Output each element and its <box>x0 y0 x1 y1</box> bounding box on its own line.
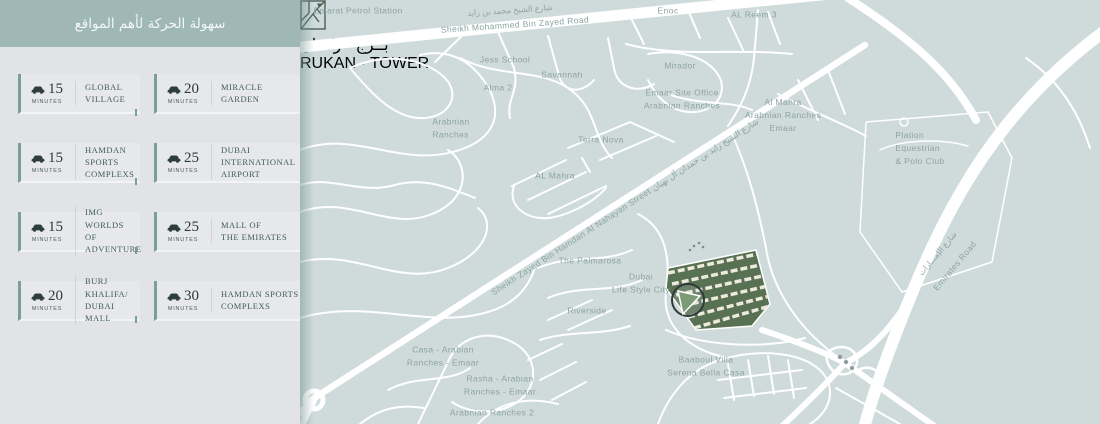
map-label-savannah: Savannah <box>541 69 582 82</box>
minutes-unit: MINUTES <box>32 99 62 105</box>
travel-card-burj-khalifa: 20 MINUTES BURJ KHALIFA/ DUBAI MALL <box>18 281 140 321</box>
sidebar-title-arabic: سهولة الحركة لأهم المواقع <box>75 16 226 32</box>
car-icon <box>31 223 45 233</box>
destination-label: MALL OF THE EMIRATES <box>211 219 287 244</box>
map-label-emarat-petrol-station: Emarat Petrol Station <box>313 5 402 18</box>
map-label-jess-school: Jess School <box>480 54 530 67</box>
minutes-value: 15 <box>48 219 63 236</box>
minutes-value: 25 <box>184 150 199 167</box>
travel-card-miracle-garden: 20 MINUTES MIRACLE GARDEN <box>154 74 306 114</box>
map-label-arabnian-ranches: Arabnian Ranches <box>432 115 469 141</box>
minutes-value: 15 <box>48 150 63 167</box>
minutes-value: 20 <box>48 288 63 305</box>
car-icon <box>167 85 181 95</box>
road-sheikh-mohammed-bin-zayed <box>300 0 1100 48</box>
car-icon <box>167 223 181 233</box>
tower-circle-marker <box>672 284 704 316</box>
minutes-unit: MINUTES <box>168 237 198 243</box>
minutes-unit: MINUTES <box>32 168 62 174</box>
map-label-terra-nova: Terra Nova <box>578 134 624 147</box>
map-label-al-mahra: AL Mahra <box>535 170 575 183</box>
destination-label: IMG WORLDS OF ADVENTURE <box>75 206 141 255</box>
destination-label: GLOBAL VILLAGE <box>75 81 125 106</box>
travel-card-dubai-airport: 25 MINUTES DUBAI INTERNATIONAL AIRPORT <box>154 143 306 183</box>
map-label-casa-ranches: Casa - Arabian Ranches - Emaar <box>407 343 479 369</box>
map-left-shadow <box>300 0 314 424</box>
map-label-al-reem-3: AL Reem 3 <box>731 9 777 22</box>
card-tick <box>135 178 138 185</box>
map-label-dubai-lifestyle-city: Dubai Life Style City <box>612 270 670 296</box>
minutes-value: 15 <box>48 81 63 98</box>
travel-card-mall-emirates: 25 MINUTES MALL OF THE EMIRATES <box>154 212 306 252</box>
map-label-mirador: Mirador <box>664 60 696 73</box>
destination-label: DUBAI INTERNATIONAL AIRPORT <box>211 144 306 181</box>
map-label-arabnian-ranches-2: Arabnian Ranches 2 <box>450 407 534 420</box>
car-icon <box>31 292 45 302</box>
minutes-unit: MINUTES <box>168 99 198 105</box>
map-label-the-palmarosa: The Palmarosa <box>559 255 622 268</box>
page: سهولة الحركة لأهم المواقع 15 MINUTES GLO… <box>0 0 1100 424</box>
card-tick <box>135 247 138 254</box>
minutes-value: 20 <box>184 81 199 98</box>
car-icon <box>167 292 181 302</box>
car-icon <box>31 85 45 95</box>
map-label-enoc: Enoc <box>658 5 679 18</box>
travel-times-sidebar: سهولة الحركة لأهم المواقع 15 MINUTES GLO… <box>0 0 300 424</box>
travel-time-cards: 15 MINUTES GLOBAL VILLAGE 20 MINUTES MIR… <box>0 74 300 321</box>
car-icon <box>167 154 181 164</box>
location-map: Emarat Petrol Station شارع الشيخ محمد بن… <box>300 0 1100 424</box>
map-label-alma-2: Alma 2 <box>484 82 513 95</box>
travel-card-hamdan-sports-1: 15 MINUTES HAMDAN SPORTS COMPLEXS <box>18 143 140 183</box>
car-icon <box>31 154 45 164</box>
card-tick <box>135 109 138 116</box>
card-tick <box>135 316 138 323</box>
travel-card-global-village: 15 MINUTES GLOBAL VILLAGE <box>18 74 140 114</box>
travel-card-img-worlds: 15 MINUTES IMG WORLDS OF ADVENTURE <box>18 212 140 252</box>
road-emirates <box>864 30 1100 424</box>
destination-label: MIRACLE GARDEN <box>211 81 263 106</box>
sidebar-header: سهولة الحركة لأهم المواقع <box>0 0 300 47</box>
minutes-unit: MINUTES <box>32 306 62 312</box>
minutes-unit: MINUTES <box>168 306 198 312</box>
destination-label: HAMDAN SPORTS COMPLEXS <box>211 288 299 313</box>
map-label-rasha-ranches: Rasha - Arabian Ranches - Emaar <box>464 372 536 398</box>
travel-card-hamdan-sports-2: 30 MINUTES HAMDAN SPORTS COMPLEXS <box>154 281 306 321</box>
map-label-polo-club: Plation Equestrian & Polo Club <box>895 129 944 167</box>
map-label-riverside: Riverside <box>567 305 606 318</box>
minutes-unit: MINUTES <box>32 237 62 243</box>
map-label-baaboul-villa: Baaboul Villa Serena Bella Casa <box>667 353 745 379</box>
minutes-value: 25 <box>184 219 199 236</box>
minutes-value: 30 <box>184 288 199 305</box>
map-label-emaar-site-office: Emaar Site Office Arabnian Ranches <box>644 86 720 112</box>
destination-label: HAMDAN SPORTS COMPLEXS <box>75 144 140 181</box>
minutes-unit: MINUTES <box>168 168 198 174</box>
destination-label: BURJ KHALIFA/ DUBAI MALL <box>75 275 140 324</box>
